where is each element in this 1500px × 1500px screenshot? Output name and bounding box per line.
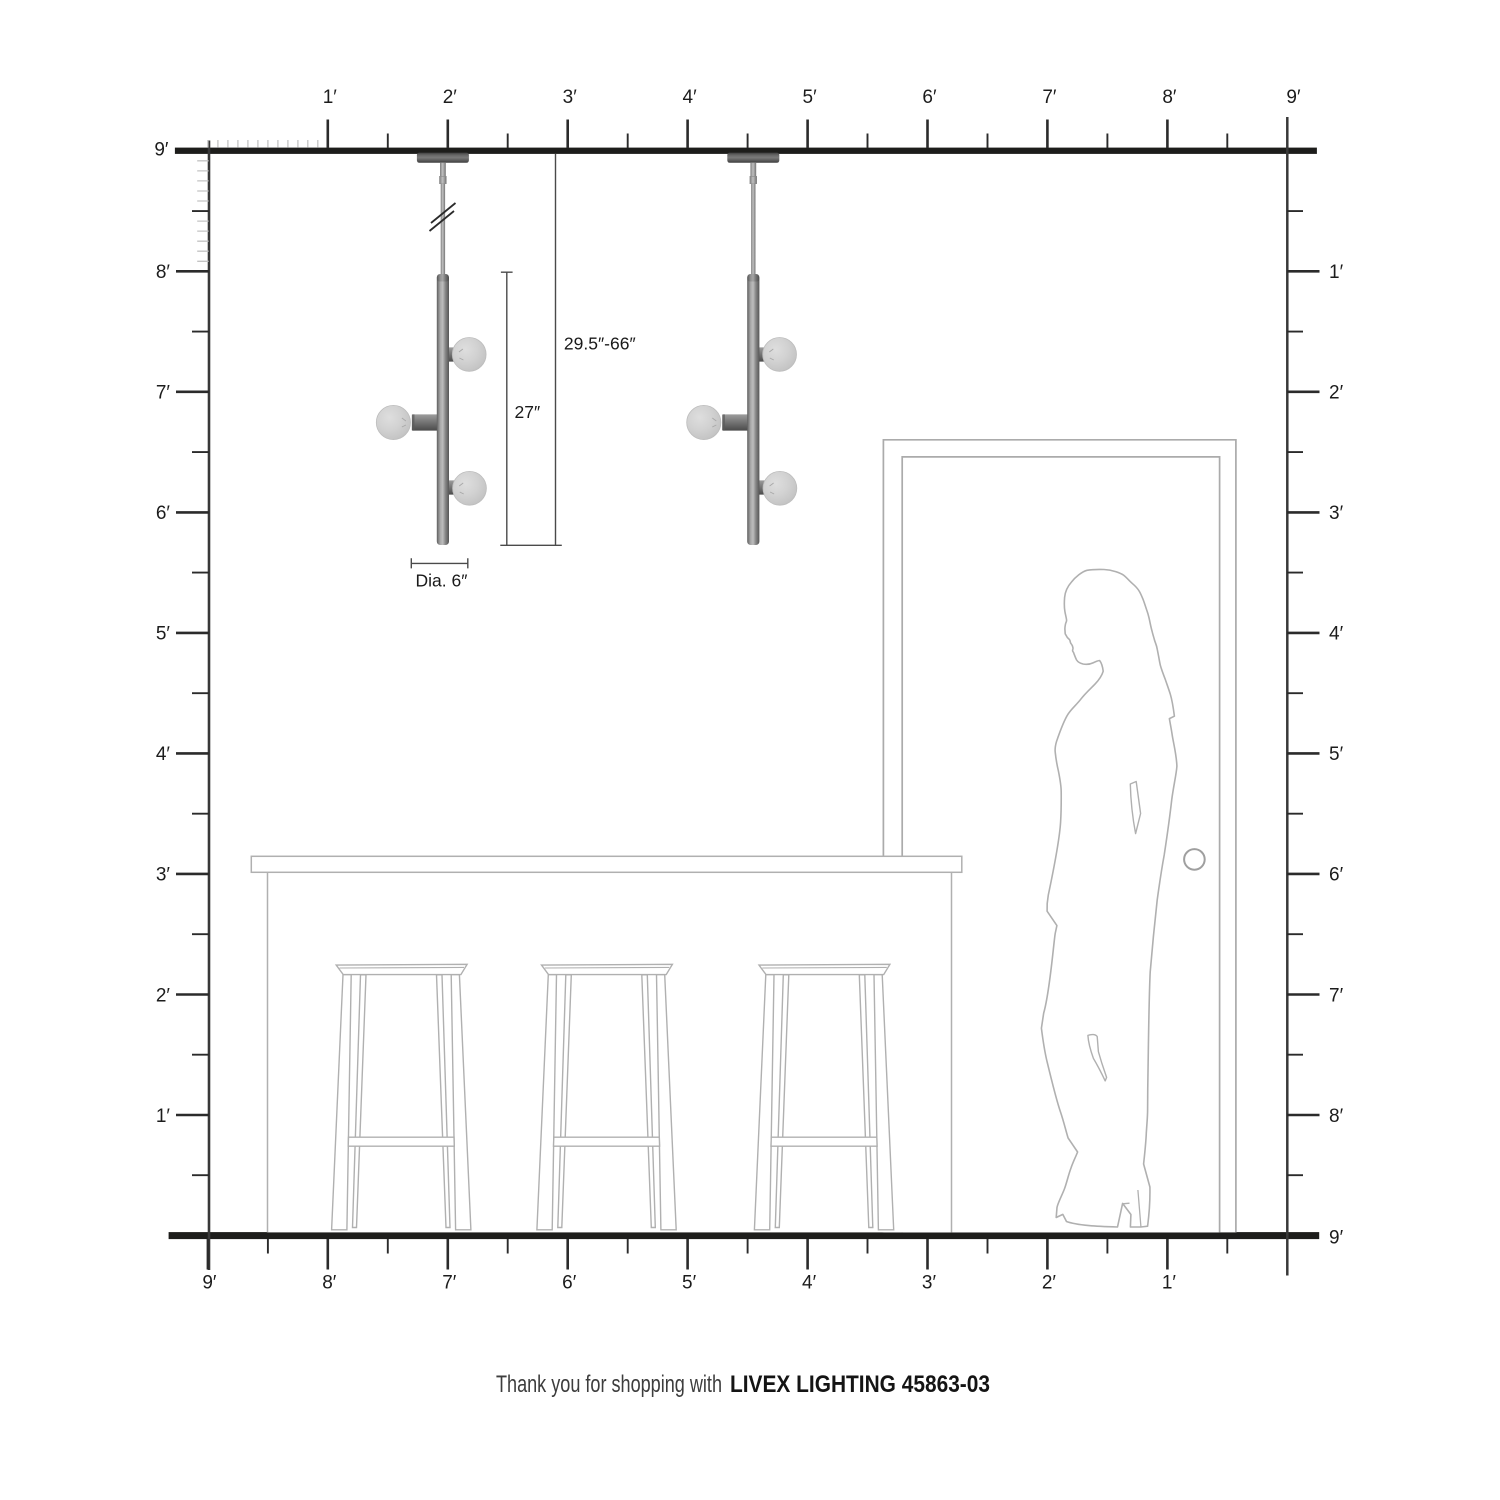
svg-text:8′: 8′ — [1329, 1106, 1344, 1127]
svg-text:1′: 1′ — [1329, 262, 1344, 283]
svg-text:3′: 3′ — [1329, 503, 1344, 524]
svg-text:4′: 4′ — [1329, 624, 1344, 645]
svg-text:1′: 1′ — [156, 1106, 171, 1127]
svg-text:8′: 8′ — [322, 1273, 337, 1294]
svg-text:1′: 1′ — [1162, 1273, 1177, 1294]
svg-text:LIVEX LIGHTING 45863-03: LIVEX LIGHTING 45863-03 — [730, 1371, 990, 1398]
svg-text:29.5″-66″: 29.5″-66″ — [564, 334, 636, 354]
svg-text:2′: 2′ — [156, 985, 171, 1006]
svg-text:7′: 7′ — [156, 383, 171, 404]
svg-text:1′: 1′ — [323, 87, 338, 108]
svg-text:3′: 3′ — [156, 865, 171, 886]
svg-text:2′: 2′ — [1042, 1273, 1057, 1294]
svg-text:8′: 8′ — [1162, 87, 1177, 108]
svg-text:2′: 2′ — [1329, 383, 1344, 404]
svg-text:5′: 5′ — [682, 1273, 697, 1294]
svg-text:7′: 7′ — [1329, 985, 1344, 1006]
svg-text:5′: 5′ — [803, 87, 818, 108]
svg-text:9′: 9′ — [154, 140, 169, 161]
svg-text:9′: 9′ — [1286, 87, 1301, 108]
svg-text:3′: 3′ — [563, 87, 578, 108]
svg-text:9′: 9′ — [202, 1273, 217, 1294]
svg-text:9′: 9′ — [1329, 1228, 1344, 1249]
svg-text:Dia. 6″: Dia. 6″ — [416, 571, 468, 591]
svg-text:7′: 7′ — [442, 1273, 457, 1294]
svg-text:3′: 3′ — [922, 1273, 937, 1294]
svg-text:6′: 6′ — [922, 87, 937, 108]
svg-text:6′: 6′ — [1329, 865, 1344, 886]
svg-text:5′: 5′ — [156, 624, 171, 645]
svg-text:4′: 4′ — [156, 744, 171, 765]
svg-text:6′: 6′ — [156, 503, 171, 524]
svg-text:4′: 4′ — [802, 1273, 817, 1294]
svg-text:Thank you for shopping with: Thank you for shopping with — [496, 1371, 722, 1398]
svg-text:4′: 4′ — [683, 87, 698, 108]
svg-text:6′: 6′ — [562, 1273, 577, 1294]
svg-text:2′: 2′ — [443, 87, 458, 108]
svg-text:7′: 7′ — [1042, 87, 1057, 108]
svg-text:27″: 27″ — [515, 402, 541, 422]
svg-text:5′: 5′ — [1329, 744, 1344, 765]
svg-text:8′: 8′ — [156, 262, 171, 283]
